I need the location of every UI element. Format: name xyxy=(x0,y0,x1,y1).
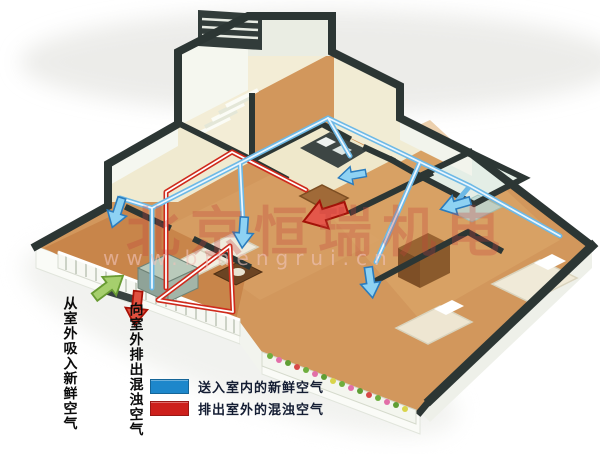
fresh-air-legend-label: 送入室内的新鲜空气 xyxy=(198,377,324,396)
ventilation-diagram: 北京恒瑞机电 www.bjhengrui.cn 从室外吸入新鲜空气 向室外排出混… xyxy=(0,0,600,454)
exhaust-air-legend-label: 排出室外的混浊空气 xyxy=(198,399,324,418)
exhaust-air-swatch xyxy=(150,401,189,416)
legend-row-fresh: 送入室内的新鲜空气 xyxy=(150,375,324,397)
legend: 送入室内的新鲜空气 排出室外的混浊空气 xyxy=(150,375,324,419)
legend-row-exhaust: 排出室外的混浊空气 xyxy=(150,397,324,419)
fresh-air-swatch xyxy=(150,379,189,394)
exhaust-annotation: 向室外排出混浊空气 xyxy=(128,302,143,453)
intake-annotation: 从室外吸入新鲜空气 xyxy=(62,296,77,447)
